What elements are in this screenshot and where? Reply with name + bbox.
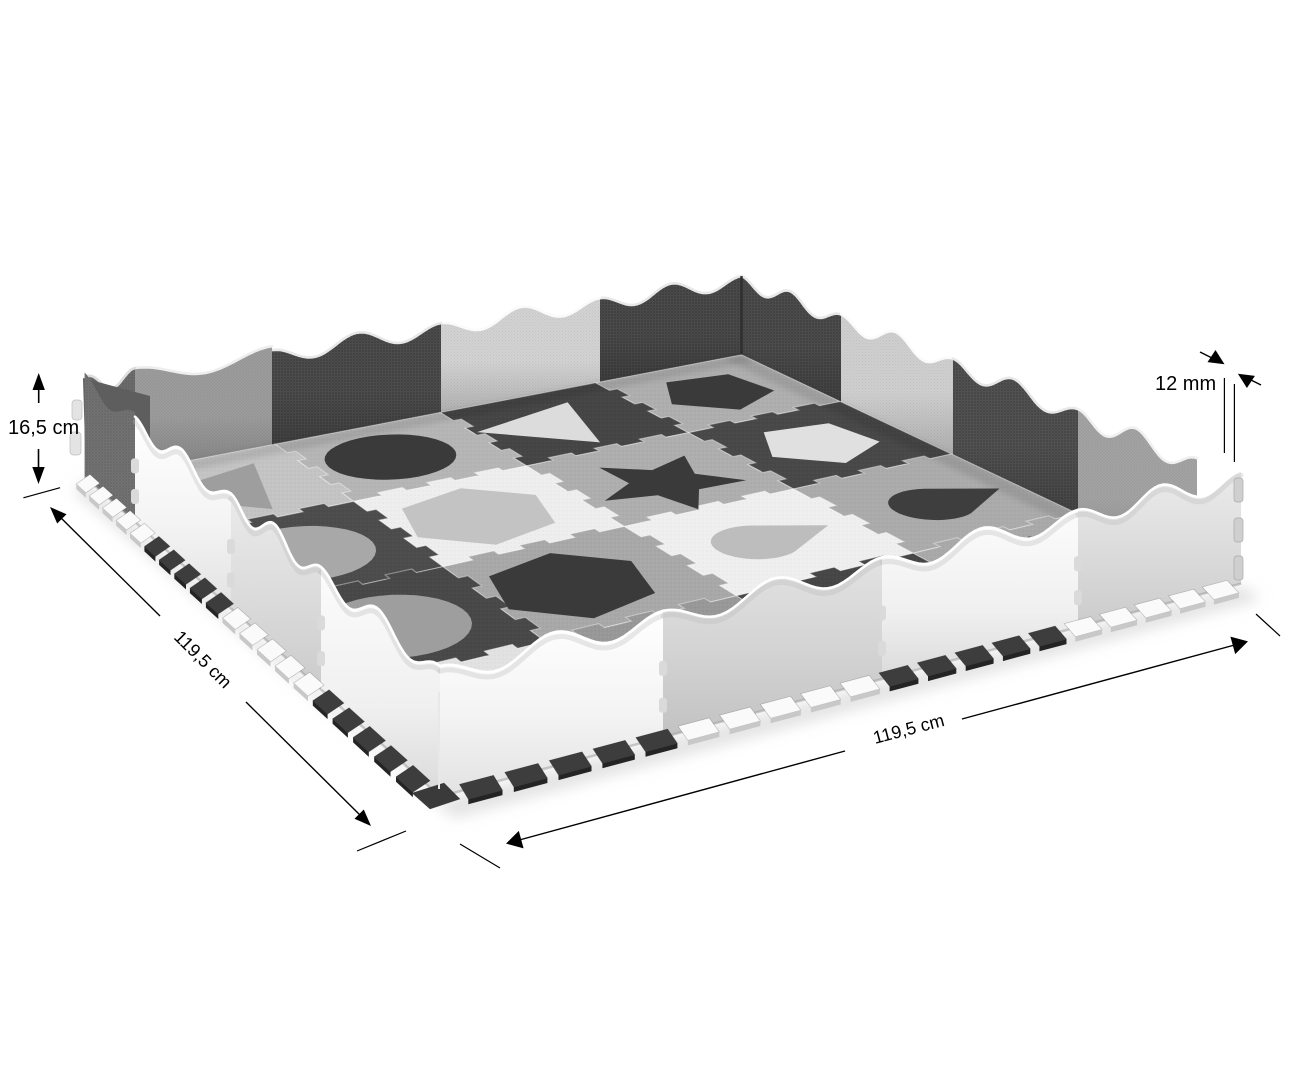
svg-text:16,5 cm: 16,5 cm [8, 417, 79, 439]
svg-text:12 mm: 12 mm [1155, 373, 1216, 395]
